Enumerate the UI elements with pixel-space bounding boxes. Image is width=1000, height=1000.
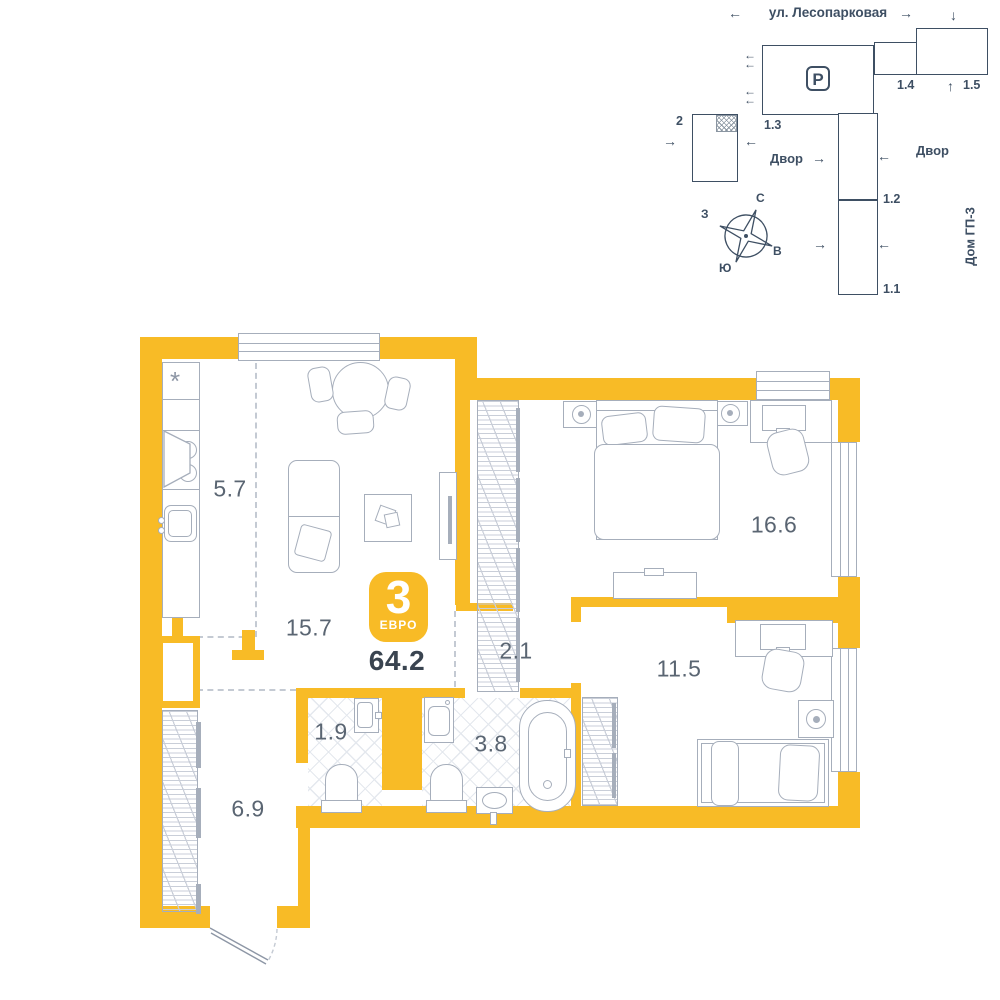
- kitchen-sink-basin: [168, 510, 192, 537]
- area-label-corridor: 2.1: [499, 638, 532, 665]
- wall-bedroom2-left-upper: [571, 597, 581, 622]
- wall-duct-pier: [382, 688, 422, 790]
- wardrobe-door-panel: [516, 408, 520, 472]
- compass-north-label: С: [756, 192, 765, 204]
- rooms-count: 3: [369, 575, 428, 619]
- lamp-dot: [727, 410, 733, 416]
- kitchen-zone-dash: [255, 363, 257, 637]
- faucet-knob: [158, 527, 165, 534]
- washing-machine-drum: [428, 706, 450, 736]
- wall-bath-top-right: [520, 688, 571, 698]
- compass-south-label: Ю: [719, 262, 731, 274]
- building-1-5-label: 1.5: [963, 79, 980, 92]
- wardrobe-door-panel: [516, 478, 520, 542]
- desk-chair: [760, 647, 807, 694]
- street-arrow-right-icon: →: [899, 6, 913, 20]
- wall-bottom-main: [296, 806, 860, 828]
- toilet-bowl: [430, 764, 463, 804]
- arrow-left-icon: ←: [744, 60, 756, 69]
- wall-stub-t-vertical: [242, 630, 255, 651]
- dresser-handle: [644, 568, 664, 576]
- bed-throw: [711, 741, 739, 806]
- bathtub-drain: [543, 780, 552, 789]
- wall-stub-t-horizontal: [232, 650, 264, 660]
- faucet-knob: [158, 517, 165, 524]
- washer-knob: [445, 700, 450, 705]
- arrow-left-icon: ←: [877, 149, 891, 163]
- pillow: [778, 744, 821, 802]
- parking-icon: P: [806, 66, 830, 91]
- floorplan-page: ← ул. Лесопарковая → ↓ P ←← ←← 1.3 1.4 ↑…: [0, 0, 1000, 1000]
- building-1-3-label: 1.3: [764, 119, 781, 132]
- window-living: [238, 333, 380, 361]
- building-2-label: 2: [676, 115, 683, 128]
- wall-right-a: [838, 378, 860, 442]
- building-1-1-1-2: [838, 113, 878, 295]
- total-area: 64.2: [369, 645, 426, 677]
- yard-label-right: Двор: [916, 144, 949, 157]
- pillow: [600, 411, 648, 446]
- building-1-1-label: 1.1: [883, 283, 900, 296]
- building-1-2-label: 1.2: [883, 193, 900, 206]
- arrow-left-icon: ←: [877, 237, 891, 251]
- area-label-bedroom2: 11.5: [657, 656, 702, 683]
- fridge-snowflake-icon: *: [170, 366, 180, 397]
- closet-shaft-box: [156, 636, 200, 708]
- wall-hallway-right: [298, 828, 310, 906]
- window-bedroom1-top: [756, 371, 830, 400]
- window-bedroom2-right: [831, 648, 857, 772]
- building-1-4: [874, 42, 918, 75]
- toilet-bowl: [325, 764, 358, 804]
- arrow-left-icon: ←: [744, 134, 758, 148]
- counter-divider: [162, 399, 200, 400]
- arrow-down-icon: ↓: [950, 8, 957, 22]
- counter-divider: [162, 430, 200, 431]
- dining-chair: [336, 410, 375, 436]
- arrow-right-icon: →: [812, 151, 826, 165]
- bathtub-faucet: [564, 749, 571, 758]
- wardrobe-door-panel: [196, 722, 201, 768]
- compass-west-label: З: [701, 208, 709, 220]
- building-divider-line: [838, 199, 878, 201]
- wall-right-b: [838, 577, 860, 648]
- arrow-left-icon: ←: [744, 96, 756, 105]
- stove-burner: [179, 464, 197, 482]
- yard-label-left: Двор: [770, 152, 803, 165]
- wardrobe-hallway: [162, 710, 198, 912]
- wc-sink-basin: [357, 702, 373, 728]
- current-building-hatch: [716, 115, 737, 132]
- area-label-bathroom: 3.8: [474, 731, 507, 758]
- dresser: [613, 572, 697, 599]
- compass-rose-icon: [712, 202, 780, 270]
- table-decor: [384, 512, 401, 529]
- window-bedroom1-right: [831, 442, 857, 577]
- building-1-5: [916, 28, 988, 75]
- dining-chair: [306, 365, 335, 403]
- area-label-hallway: 6.9: [231, 796, 264, 823]
- wardrobe-door-panel: [196, 884, 201, 914]
- sink-pedestal: [490, 812, 497, 825]
- stove-burner: [179, 441, 197, 459]
- counter-divider: [162, 489, 200, 490]
- area-label-wc: 1.9: [314, 719, 347, 746]
- area-label-living: 15.7: [286, 615, 332, 642]
- entrance-door-swing-arc: [268, 929, 277, 961]
- wall-entry-right: [277, 906, 310, 928]
- arrow-up-icon: ↑: [947, 79, 954, 93]
- wardrobe-door-panel: [612, 703, 616, 748]
- arrow-right-icon: →: [663, 134, 677, 148]
- wall-left-exterior: [140, 337, 162, 928]
- blanket: [594, 444, 720, 540]
- area-label-kitchen: 5.7: [213, 476, 246, 503]
- bath-sink-basin: [482, 792, 507, 809]
- wall-living-bedroom: [455, 378, 470, 605]
- street-arrow-left-icon: ←: [728, 6, 742, 20]
- pillow: [652, 405, 706, 444]
- wall-wc-top: [296, 688, 382, 698]
- area-label-bedroom1: 16.6: [751, 512, 797, 539]
- compass-east-label: В: [773, 245, 782, 257]
- parking-arrows-left-top: ←←: [744, 51, 756, 69]
- wall-wc-left: [296, 690, 308, 763]
- wardrobe-door-panel: [196, 788, 201, 838]
- toilet-tank: [321, 800, 362, 813]
- entrance-door-leaf: [210, 928, 268, 964]
- neighbor-house-label: Дом ГП-3: [964, 187, 977, 287]
- faucet-knob: [375, 712, 382, 719]
- building-1-4-label: 1.4: [897, 79, 914, 92]
- wardrobe-door-panel: [612, 753, 616, 798]
- tv-screen: [448, 496, 452, 544]
- wardrobe-door-panel: [516, 548, 520, 612]
- lamp-dot: [578, 411, 584, 417]
- corridor-zone-dash: [454, 611, 456, 687]
- sofa-cushion-line: [289, 516, 339, 517]
- lamp-dot: [813, 716, 820, 723]
- rooms-badge: 3 ЕВРО: [369, 572, 428, 642]
- parking-arrows-left-bottom: ←←: [744, 87, 756, 105]
- toilet-tank: [426, 800, 467, 813]
- arrow-right-icon: →: [813, 237, 827, 251]
- street-label: ул. Лесопарковая: [762, 5, 894, 20]
- wall-stub-closet: [172, 617, 183, 638]
- layout-type: ЕВРО: [369, 618, 428, 632]
